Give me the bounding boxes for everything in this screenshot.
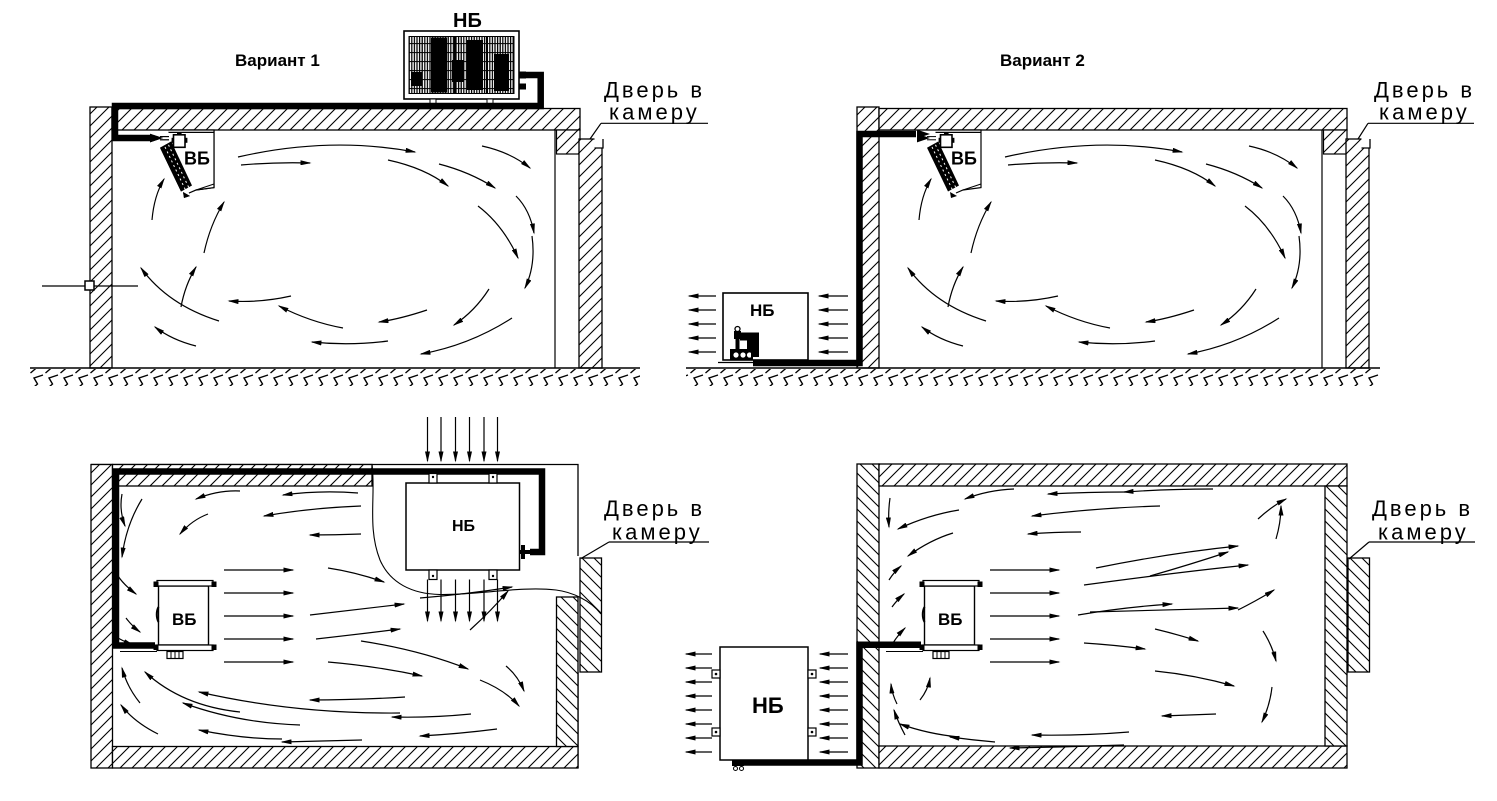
svg-text:камеру: камеру xyxy=(1378,520,1469,545)
svg-text:ВБ: ВБ xyxy=(172,610,197,629)
svg-text:камеру: камеру xyxy=(1379,100,1470,125)
svg-text:Дверь в: Дверь в xyxy=(604,496,705,521)
svg-text:НБ: НБ xyxy=(453,10,482,32)
svg-text:камеру: камеру xyxy=(609,100,700,125)
svg-text:камеру: камеру xyxy=(612,520,703,545)
svg-text:Дверь в: Дверь в xyxy=(1372,496,1473,521)
svg-text:НБ: НБ xyxy=(452,518,475,535)
svg-text:НБ: НБ xyxy=(752,693,784,718)
svg-text:НБ: НБ xyxy=(750,301,775,320)
svg-text:Вариант 2: Вариант 2 xyxy=(1000,51,1085,70)
svg-text:Вариант 1: Вариант 1 xyxy=(235,51,320,70)
